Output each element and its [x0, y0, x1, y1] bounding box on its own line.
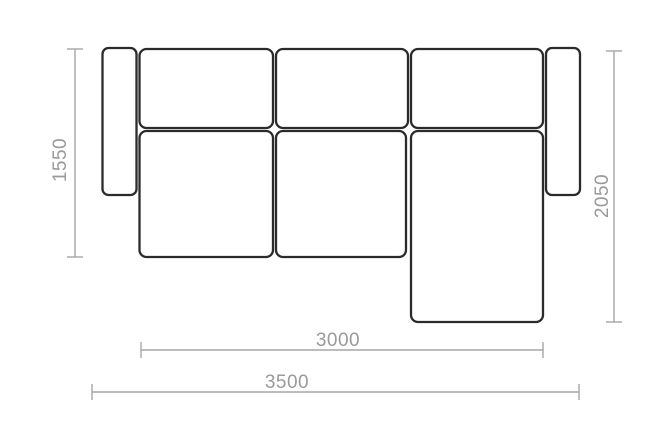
dimension-label-seat-width: 3000 [316, 330, 360, 351]
chaise-seat [411, 131, 543, 322]
dimension-label-chaise-depth: 2050 [592, 174, 613, 218]
right-armrest [546, 48, 580, 195]
diagram-canvas: 1550 2050 3000 3500 [0, 0, 666, 444]
seat-cushion-2 [276, 131, 406, 257]
back-cushion-2 [276, 49, 408, 128]
dimension-seat-width: 3000 [141, 330, 543, 358]
seat-cushion-1 [140, 131, 274, 257]
dimension-label-overall-width: 3500 [265, 372, 309, 393]
dimension-sofa-depth: 1550 [50, 49, 83, 257]
sofa-outline [103, 48, 581, 322]
left-armrest [103, 48, 137, 195]
sofa-dimension-diagram: 1550 2050 3000 3500 [0, 0, 666, 444]
back-cushion-1 [140, 49, 274, 128]
back-cushion-3 [411, 49, 543, 128]
dimension-overall-width: 3500 [92, 372, 579, 400]
dimension-label-sofa-depth: 1550 [50, 138, 71, 182]
dimension-chaise-depth: 2050 [592, 51, 622, 322]
